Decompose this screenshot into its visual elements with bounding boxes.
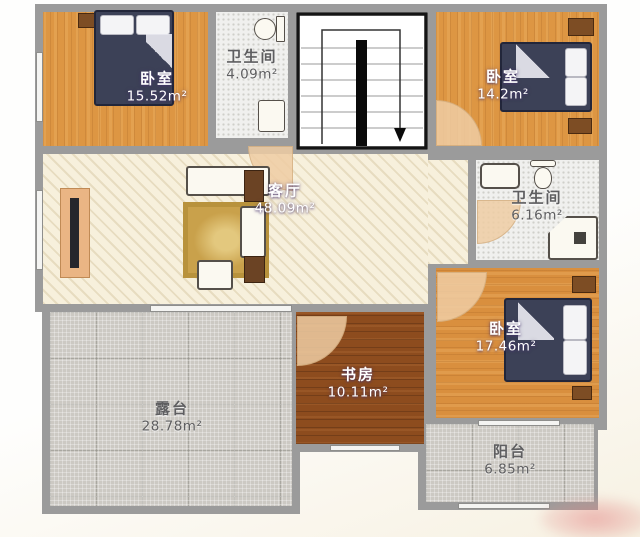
room-area: 6.85m² bbox=[484, 463, 536, 479]
room-name: 客厅 bbox=[255, 183, 316, 200]
room-name: 卧室 bbox=[127, 71, 188, 88]
window bbox=[478, 420, 560, 426]
washer-icon bbox=[258, 100, 285, 132]
toilet-icon bbox=[534, 167, 552, 189]
hallway bbox=[428, 160, 468, 264]
room-name: 露台 bbox=[142, 401, 203, 418]
stairs-icon bbox=[296, 12, 428, 150]
pillow bbox=[565, 77, 587, 106]
toilet-tank-icon bbox=[276, 16, 285, 42]
room-name: 书房 bbox=[328, 367, 389, 384]
room-label-bedroom-top-left: 卧室 15.52m² bbox=[127, 71, 188, 106]
armchair-icon bbox=[197, 260, 233, 290]
room-area: 4.09m² bbox=[226, 68, 278, 84]
room-area: 10.11m² bbox=[328, 386, 389, 402]
room-name: 卧室 bbox=[476, 321, 537, 338]
pillow bbox=[563, 340, 587, 375]
pillow bbox=[100, 15, 134, 35]
room-label-study: 书房 10.11m² bbox=[328, 367, 389, 402]
nightstand-icon bbox=[572, 276, 596, 293]
room-name: 卫生间 bbox=[511, 190, 563, 207]
room-label-bathroom-right: 卫生间 6.16m² bbox=[511, 190, 563, 225]
tv-icon bbox=[70, 198, 79, 268]
room-label-bedroom-bottom-right: 卧室 17.46m² bbox=[476, 321, 537, 356]
room-label-living: 客厅 48.09m² bbox=[255, 183, 316, 218]
room-name: 卧室 bbox=[477, 69, 529, 86]
side-table-icon bbox=[244, 256, 265, 283]
room-label-terrace: 露台 28.78m² bbox=[142, 401, 203, 436]
room-area: 48.09m² bbox=[255, 202, 316, 218]
room-label-bedroom-top-right: 卧室 14.2m² bbox=[477, 69, 529, 104]
watermark-smudge bbox=[540, 498, 640, 537]
room-area: 28.78m² bbox=[142, 420, 203, 436]
room-label-balcony: 阳台 6.85m² bbox=[484, 444, 536, 479]
window bbox=[330, 445, 400, 451]
window bbox=[150, 305, 292, 312]
pillow bbox=[136, 15, 170, 35]
shower-head-icon bbox=[574, 232, 586, 244]
pillow bbox=[565, 48, 587, 77]
room-label-bathroom-top: 卫生间 4.09m² bbox=[226, 49, 278, 84]
nightstand-icon bbox=[568, 18, 594, 36]
nightstand-icon bbox=[572, 386, 592, 400]
pillow bbox=[563, 305, 587, 340]
nightstand-icon bbox=[568, 118, 592, 134]
room-area: 6.16m² bbox=[511, 209, 563, 225]
toilet-icon bbox=[254, 18, 276, 40]
window bbox=[36, 190, 43, 270]
room-area: 15.52m² bbox=[127, 90, 188, 106]
window bbox=[36, 52, 43, 122]
room-name: 卫生间 bbox=[226, 49, 278, 66]
window bbox=[458, 503, 550, 509]
room-area: 17.46m² bbox=[476, 340, 537, 356]
floor-plan: 卧室 15.52m² 卫生间 4.09m² 卧室 14.2m² 客厅 48.09… bbox=[0, 0, 640, 537]
room-stairwell bbox=[296, 12, 428, 150]
toilet-tank-icon bbox=[530, 160, 556, 167]
room-area: 14.2m² bbox=[477, 88, 529, 104]
sink-icon bbox=[480, 163, 520, 189]
room-name: 阳台 bbox=[484, 444, 536, 461]
